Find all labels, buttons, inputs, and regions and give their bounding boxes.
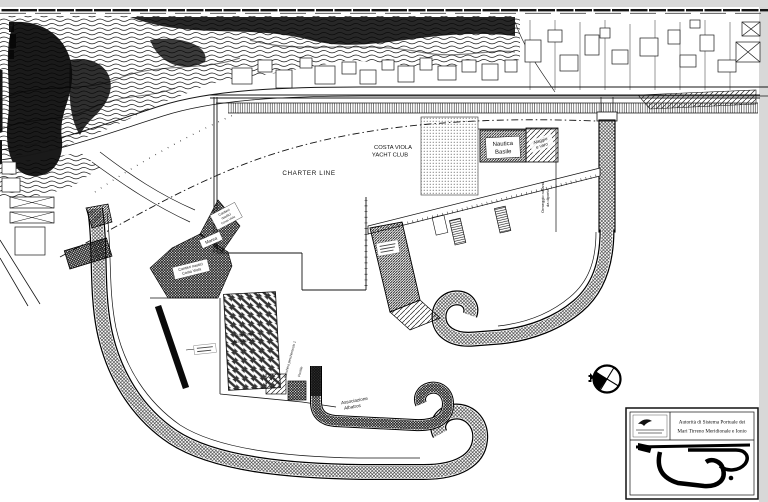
scanned-port-plan-page: Nautica Basile Alaggio e varo Ormeggio n… <box>0 0 768 502</box>
yacht-club-label: YACHT CLUB <box>372 153 408 159</box>
harbor-plan-map: Nautica Basile Alaggio e varo Ormeggio n… <box>0 0 768 502</box>
charter-line-label: CHARTER LINE <box>282 170 335 177</box>
authority-name: Mari Tirreno Meridionale e Ionio <box>677 429 747 435</box>
alaggio-varo-area: Alaggio e varo <box>526 128 558 162</box>
title-block: Autorità di Sistema Portuale dei Mari Ti… <box>626 408 758 499</box>
ormeggio-label: da diporto <box>545 188 550 207</box>
nautica-basile-label: Basile <box>495 149 512 156</box>
small-quay-2 <box>288 381 306 400</box>
nautica-basile-building: Nautica Basile <box>480 130 526 162</box>
authority-name: Autorità di Sistema Portuale dei <box>679 420 746 426</box>
nautica-basile-label: Nautica <box>493 141 514 148</box>
yacht-club-label: COSTA VIOLA <box>374 145 412 151</box>
stippled-area <box>421 117 478 195</box>
